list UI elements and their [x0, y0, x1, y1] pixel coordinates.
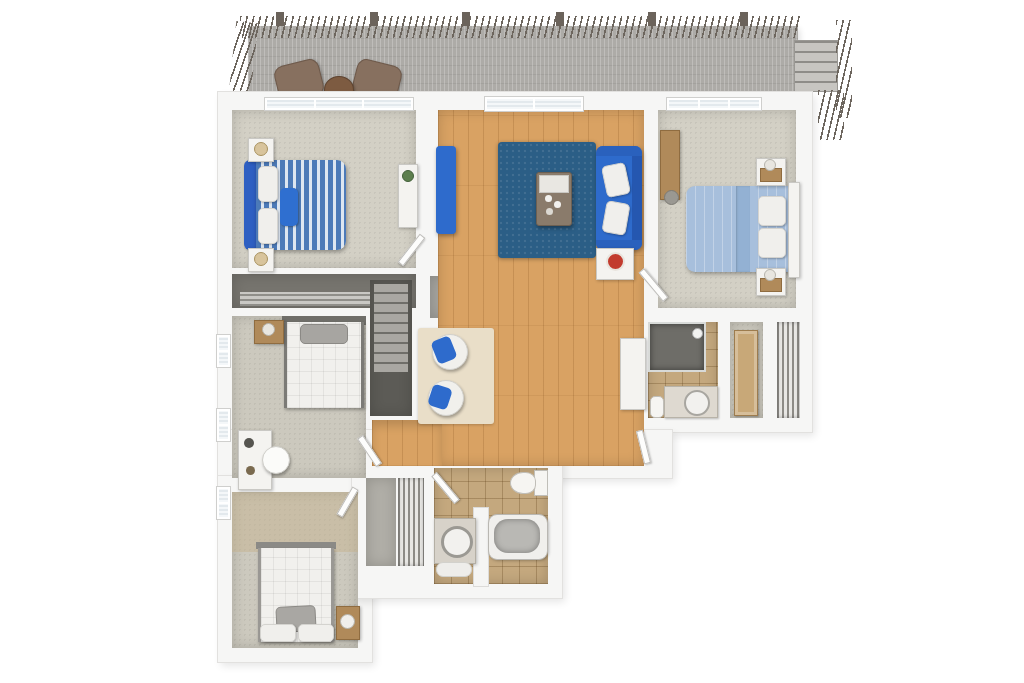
table-lamp	[254, 142, 268, 156]
window-bedroom-middle-left-2	[216, 408, 231, 442]
closet-right-linen-door	[734, 330, 758, 416]
table-decor	[554, 201, 561, 208]
toilet	[650, 396, 664, 418]
table-decor	[545, 195, 552, 202]
closet-bottom-interior	[366, 478, 396, 566]
bed-pillow	[260, 624, 296, 642]
window-pane	[219, 411, 228, 424]
glass-pane	[487, 99, 533, 109]
desk-chair	[664, 190, 679, 205]
sofa-backrest	[632, 148, 642, 248]
window-pane	[700, 100, 729, 108]
hallway-floor	[372, 420, 442, 466]
bathtub-basin	[494, 519, 540, 553]
window-pane	[364, 100, 411, 108]
bench-blue	[436, 146, 456, 234]
desk-item	[244, 438, 254, 448]
bed-pillow	[298, 624, 334, 642]
window-bedroom-middle-left-1	[216, 334, 231, 368]
sliding-glass-door-living	[484, 96, 584, 112]
building	[0, 0, 1024, 683]
window-bedroom-upper-right	[666, 97, 762, 111]
bed-accent-pillow-blue	[280, 188, 298, 226]
bed-pillow	[758, 196, 786, 226]
window-pane	[219, 352, 228, 365]
floor-plan-scene	[0, 0, 1024, 683]
table-lamp	[262, 323, 275, 336]
toilet-bowl	[510, 472, 536, 494]
bed-pillow	[258, 166, 278, 202]
table-lamp	[764, 159, 776, 171]
window-pane	[669, 100, 698, 108]
staircase	[374, 284, 408, 372]
toilet-tank	[534, 470, 548, 496]
glass-pane	[535, 99, 581, 109]
bed-headboard-white	[788, 182, 800, 278]
coffee-table-tray	[539, 175, 569, 193]
vanity-sink	[684, 390, 710, 416]
bed-throw-band	[736, 186, 750, 272]
window-bedroom-bottom-left	[216, 486, 231, 520]
table-decor	[546, 208, 553, 215]
window-pane	[219, 504, 228, 517]
sofa-armrest	[596, 146, 642, 156]
plant	[402, 170, 414, 182]
desk-item	[246, 466, 255, 475]
window-bedroom-upper-left	[264, 97, 414, 111]
bed-pillow	[758, 228, 786, 258]
window-pane	[730, 100, 759, 108]
window-pane	[219, 489, 228, 502]
bed-pillow	[258, 208, 278, 244]
vanity-sink-round	[441, 526, 473, 558]
decor-red-sculpture	[606, 252, 625, 271]
bathroom-partition-wall	[474, 508, 488, 586]
bath-mat	[436, 562, 472, 577]
window-pane	[267, 100, 314, 108]
window-pane	[316, 100, 363, 108]
window-pane	[219, 337, 228, 350]
table-lamp	[254, 252, 268, 266]
window-pane	[219, 426, 228, 439]
closet-right-louvered-door	[777, 322, 800, 418]
bed-gray-pillow	[300, 324, 348, 344]
bed-headboard-blue	[244, 160, 256, 250]
shower-head	[692, 328, 703, 339]
table-lamp	[340, 614, 355, 629]
table-lamp	[764, 269, 776, 281]
desk-chair-round	[262, 446, 290, 474]
closet-bottom-louvered-door	[398, 478, 424, 566]
tall-cabinet	[620, 338, 646, 410]
